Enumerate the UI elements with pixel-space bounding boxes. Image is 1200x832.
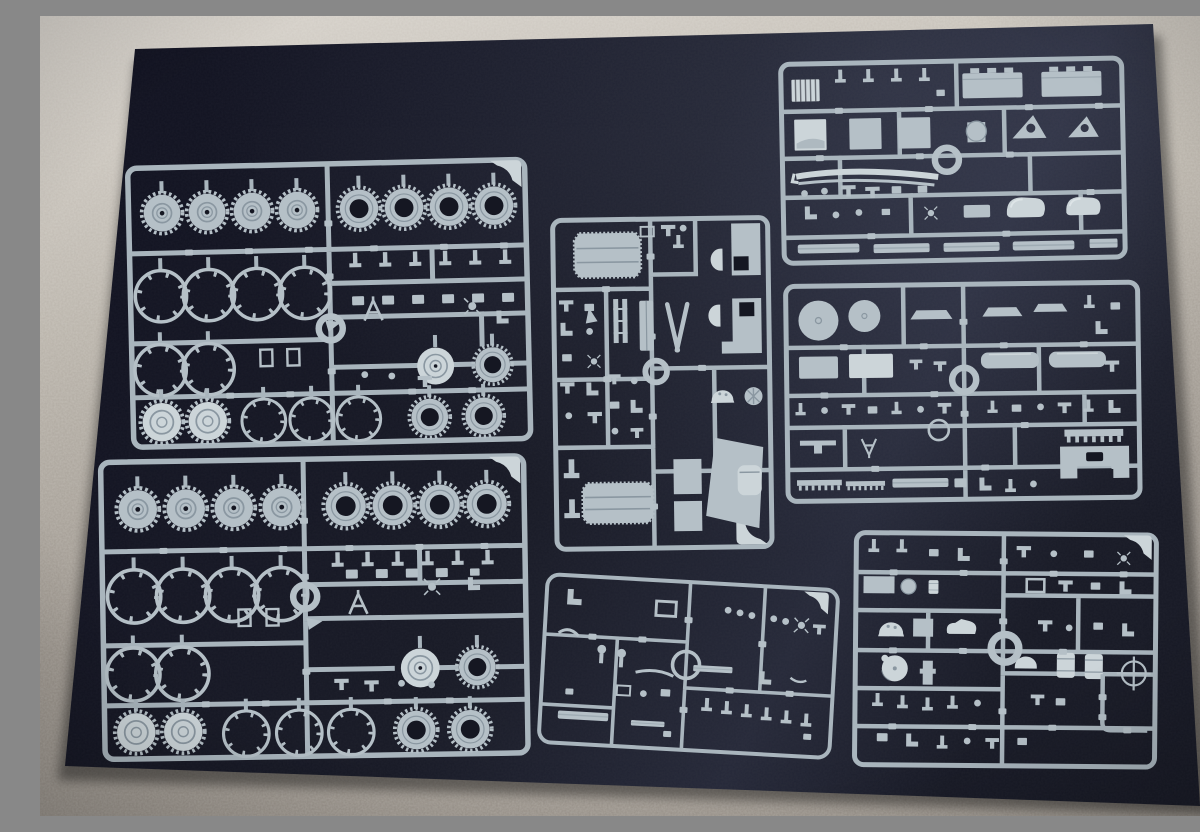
photo-vignette xyxy=(40,16,1200,816)
model-kit-sprues-photo: Seven unassembled light-grey plastic sca… xyxy=(40,16,1200,816)
photo-canvas: Seven unassembled light-grey plastic sca… xyxy=(40,16,1200,816)
